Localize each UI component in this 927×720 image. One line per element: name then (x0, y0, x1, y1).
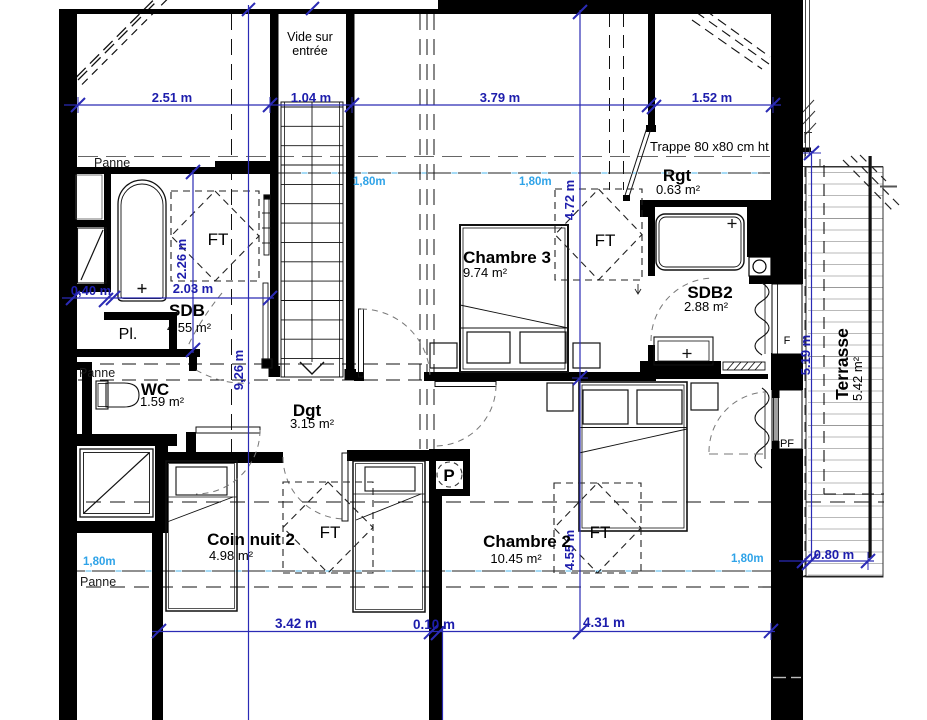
svg-text:1.59 m²: 1.59 m² (140, 394, 185, 409)
svg-text:1,80m: 1,80m (353, 176, 386, 188)
svg-text:Vide sur: Vide sur (287, 30, 333, 44)
svg-text:0.10 m: 0.10 m (413, 617, 455, 632)
svg-text:1.52 m: 1.52 m (692, 90, 732, 105)
svg-text:entrée: entrée (292, 44, 327, 58)
svg-text:P: P (443, 466, 454, 485)
svg-text:4.31 m: 4.31 m (583, 615, 625, 630)
svg-text:4.72 m: 4.72 m (562, 180, 577, 220)
svg-text:FT: FT (208, 230, 229, 249)
svg-text:10.45 m²: 10.45 m² (490, 551, 542, 566)
svg-text:1,80m: 1,80m (731, 553, 764, 565)
svg-text:F: F (784, 335, 791, 347)
svg-text:1.04 m: 1.04 m (291, 90, 331, 105)
svg-text:3.79 m: 3.79 m (480, 90, 520, 105)
svg-text:PF: PF (780, 438, 794, 450)
svg-text:Pl.: Pl. (119, 326, 138, 343)
svg-text:4.55 m²: 4.55 m² (167, 320, 212, 335)
svg-text:5.42 m²: 5.42 m² (850, 356, 865, 401)
svg-text:1,80m: 1,80m (519, 176, 552, 188)
svg-text:Trappe 80 x80 cm ht: Trappe 80 x80 cm ht (650, 139, 769, 154)
svg-text:SDB: SDB (169, 301, 205, 320)
svg-text:Coin nuit 2: Coin nuit 2 (207, 530, 295, 549)
svg-text:2.26 m: 2.26 m (174, 239, 189, 279)
svg-text:2.88 m²: 2.88 m² (684, 299, 729, 314)
svg-text:0,40 m: 0,40 m (71, 283, 111, 298)
svg-text:3.15 m²: 3.15 m² (290, 416, 335, 431)
svg-text:9,26 m: 9,26 m (231, 350, 246, 390)
svg-text:2.51 m: 2.51 m (152, 90, 192, 105)
svg-text:0.63 m²: 0.63 m² (656, 182, 701, 197)
svg-text:9.74 m²: 9.74 m² (463, 265, 508, 280)
svg-text:FT: FT (590, 523, 611, 542)
svg-text:2.03 m: 2.03 m (173, 281, 213, 296)
svg-text:5.19 m: 5.19 m (798, 335, 813, 375)
svg-text:Panne: Panne (94, 156, 130, 170)
svg-text:Chambre 2: Chambre 2 (483, 532, 571, 551)
svg-text:0.80 m: 0.80 m (814, 547, 854, 562)
svg-text:1,80m: 1,80m (83, 556, 116, 568)
svg-text:Panne: Panne (79, 366, 115, 380)
svg-text:FT: FT (320, 523, 341, 542)
svg-text:4.98 m²: 4.98 m² (209, 548, 254, 563)
svg-text:Panne: Panne (80, 575, 116, 589)
svg-text:Terrasse: Terrasse (832, 328, 852, 400)
svg-text:FT: FT (595, 231, 616, 250)
svg-text:3.42 m: 3.42 m (275, 616, 317, 631)
